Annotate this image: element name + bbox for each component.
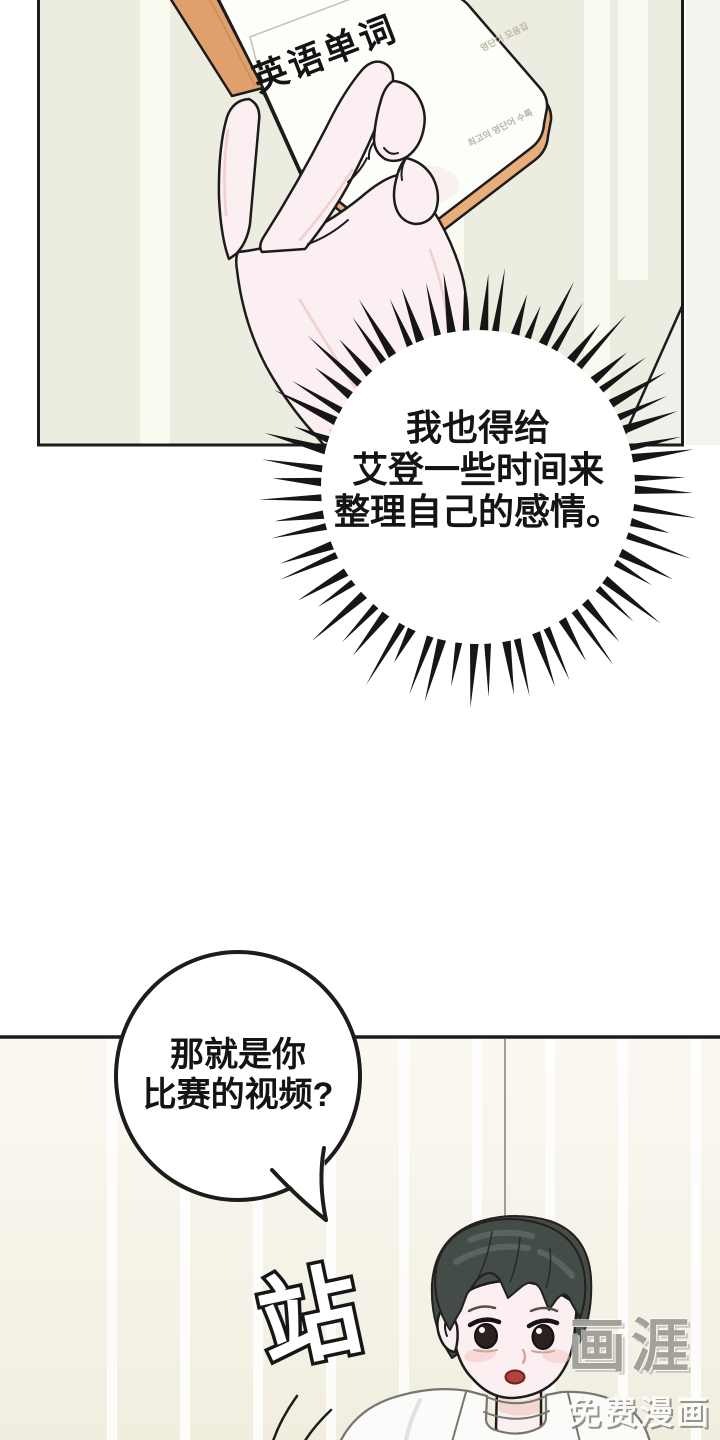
- mouth: [506, 1371, 525, 1384]
- comic-page: { "page": {"width": 720, "height": 1440}…: [0, 0, 720, 1440]
- watermark: 画涯 免费漫画: [568, 1316, 712, 1434]
- speech-bubble-text: 那就是你 比赛的视频?: [118, 1035, 358, 1115]
- motion-lines: [273, 1396, 331, 1440]
- burst-line-2: 艾登一些时间来: [322, 449, 634, 491]
- sfx-stand-text: 站: [249, 1253, 370, 1383]
- overlay-artwork: 站: [0, 0, 720, 1440]
- burst-line-1: 我也得给: [322, 407, 634, 449]
- speech-line-2: 比赛的视频?: [118, 1075, 358, 1115]
- burst-bubble-text: 我也得给 艾登一些时间来 整理自己的感情。: [322, 407, 634, 533]
- watermark-tagline: 免费漫画: [568, 1386, 712, 1434]
- burst-line-3: 整理自己的感情。: [322, 491, 634, 533]
- watermark-logo: 画涯: [568, 1316, 712, 1378]
- speech-line-1: 那就是你: [118, 1035, 358, 1075]
